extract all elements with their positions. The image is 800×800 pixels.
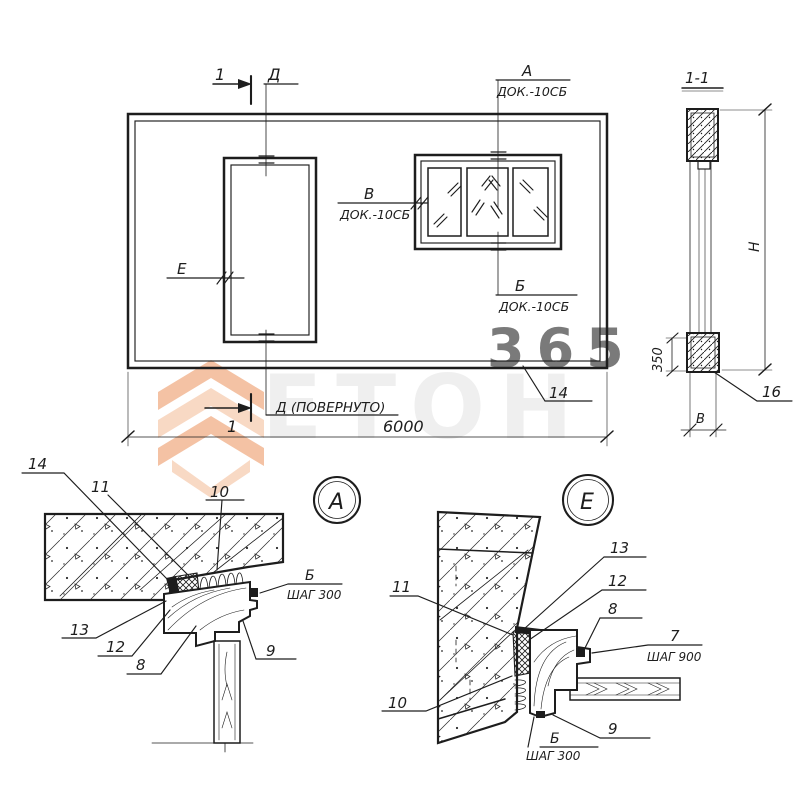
detail-e-callout-13: 13 [610,539,629,557]
section-bottom-block [687,333,719,372]
height-dimension: Н [720,104,772,375]
detail-a-casement [152,641,253,752]
node-e-label: Е [167,260,244,284]
detail-e-fastener-step: ШАГ 300 [526,749,581,763]
thickness-dimension: В [681,372,726,437]
watermark-number: 365 [487,317,636,380]
detail-e-view: Е [382,475,702,763]
section-cut-bottom-label: 1 [227,417,237,436]
detail-e-fastener-head [536,711,545,718]
detail-a-callout-14: 14 [28,455,47,473]
detail-e-callout-11: 11 [392,578,411,596]
section-cut-top-label: 1 [215,65,225,84]
panel-drawing-svg: ЕТОН 365 1 [0,0,800,800]
detail-e-callout-12: 12 [608,572,627,590]
detail-a-bubble: А [314,477,360,523]
detail-e-sill-board [570,678,680,700]
blueprint-canvas: ЕТОН 365 1 [0,0,800,800]
detail-a-callout-8: 8 [136,656,146,674]
detail-a-fastener-head [250,588,258,597]
detail-a-callout-10: 10 [210,483,229,501]
detail-a-callout-9: 9 [266,642,276,660]
detail-a-fastener-step: ШАГ 300 [287,588,342,602]
axis-d-top-label: Д [267,65,281,84]
section-title: 1-1 [685,69,710,87]
node-e-letter: Е [177,260,187,278]
left-opening [224,158,316,342]
detail-e-screw-step: ШАГ 900 [647,650,702,664]
section-1-1-view: 1-1 Н 350 В [651,69,792,437]
detail-e-screw-head [576,648,585,657]
detail-e-callout-9: 9 [608,720,618,738]
node-a-label: А ДОК.-10СБ [491,62,570,208]
glazing-marks [434,176,547,227]
detail-a-callout-11: 11 [91,478,110,496]
height-dimension-value: Н [747,241,763,252]
detail-e-title: Е [580,490,594,515]
node-a-letter: А [521,62,532,80]
section-cut-top: 1 [213,65,252,104]
detail-a-wood-frame [164,582,257,646]
detail-a-fastener-label: Б [305,568,315,584]
detail-e-screw-label: 7 [670,627,680,645]
detail-a-callout-12: 12 [106,638,125,656]
axis-d-rotated: Д (ПОВЕРНУТО) [266,400,398,416]
window-opening [415,155,561,249]
node-v-letter: В [364,185,374,203]
detail-a-callout-13: 13 [70,621,89,639]
axis-d-rotated-label: Д (ПОВЕРНУТО) [275,400,385,416]
section-top-block [687,109,718,161]
node-b-letter: Б [515,277,525,295]
thickness-dimension-value: В [696,412,705,427]
panel-callout-14-label: 14 [549,384,568,402]
detail-e-fastener-label: Б [550,731,560,747]
node-b-label: Б ДОК.-10СБ [491,232,577,314]
detail-a-title: А [327,490,344,515]
detail-e-callout-8: 8 [608,600,618,618]
detail-a-view: А [22,455,360,752]
node-b-ref: ДОК.-10СБ [498,299,569,314]
detail-e-caulk [513,630,530,676]
width-dimension-value: 6000 [383,417,424,436]
rail-dimension-value: 350 [651,347,666,372]
rail-dimension-350: 350 [651,333,687,376]
detail-e-callout-10: 10 [388,694,407,712]
beton-logo-icon [158,360,264,498]
detail-e-bubble: Е [563,475,613,525]
node-a-ref: ДОК.-10СБ [496,84,567,99]
section-callout-16: 16 [714,372,792,401]
section-callout-16-label: 16 [762,383,781,401]
node-v-ref: ДОК.-10СБ [339,207,410,222]
